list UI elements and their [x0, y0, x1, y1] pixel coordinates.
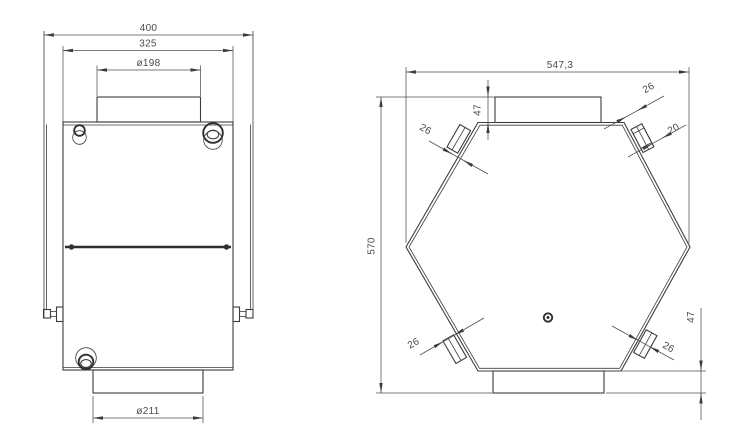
top-view: 547,3 570 47 47 2 — [367, 60, 707, 420]
dim-port-top-right: 26 — [604, 81, 664, 129]
port-top-left — [447, 124, 471, 153]
center-mark — [544, 313, 552, 321]
top-collar-lower — [493, 371, 604, 393]
front-fitting-bottom-left — [76, 348, 97, 370]
dim-port-bottom-right: 26 — [612, 326, 676, 360]
dim-port-bottom-left: 26 — [406, 318, 484, 355]
port-bottom-left — [443, 335, 467, 364]
dim-top-collar-lower: 47 — [606, 308, 706, 420]
drawing-sheet: 400 325 ø198 ø211 — [0, 0, 750, 444]
front-bottom-collar — [93, 370, 203, 393]
dim-front-body-width: 325 — [63, 39, 233, 122]
dim-front-overall-width: 400 — [44, 23, 253, 35]
top-collar-upper — [495, 97, 601, 123]
dim-port-top-left-label: 26 — [417, 122, 433, 137]
front-left-stub-boss — [57, 307, 64, 322]
dim-top-collar-lower-label: 47 — [686, 311, 697, 323]
dim-front-top-port: ø198 — [97, 58, 201, 96]
dim-top-collar-upper-label: 47 — [473, 104, 484, 116]
front-right-stub-bracket — [246, 310, 253, 319]
front-view: 400 325 ø198 ø211 — [44, 23, 254, 423]
front-left-stub-bracket — [44, 310, 51, 319]
dim-front-bottom-port-label: ø211 — [136, 406, 159, 417]
dim-front-top-port-label: ø198 — [137, 58, 161, 69]
dim-front-body-width-label: 325 — [139, 39, 157, 50]
front-internal-rod — [65, 244, 231, 249]
dim-port-top-right-label: 26 — [641, 81, 657, 96]
hexagon-outer-wall — [406, 123, 690, 372]
dim-front-bottom-port: ø211 — [93, 396, 203, 423]
dim-port-bottom-right-label: 26 — [660, 340, 676, 355]
dim-port-bottom-left-label: 26 — [406, 336, 422, 351]
front-right-stub-boss — [233, 307, 240, 322]
front-top-collar — [97, 97, 201, 122]
dim-front-overall-width-label: 400 — [140, 23, 158, 34]
dim-top-overall-width-label: 547,3 — [547, 60, 574, 71]
front-fitting-top-left — [73, 125, 87, 144]
front-fitting-top-right — [203, 123, 223, 149]
technical-drawing-canvas: 400 325 ø198 ø211 — [0, 0, 750, 444]
dim-top-overall-height-label: 570 — [367, 237, 378, 255]
dim-top-collar-upper: 47 — [473, 80, 489, 140]
